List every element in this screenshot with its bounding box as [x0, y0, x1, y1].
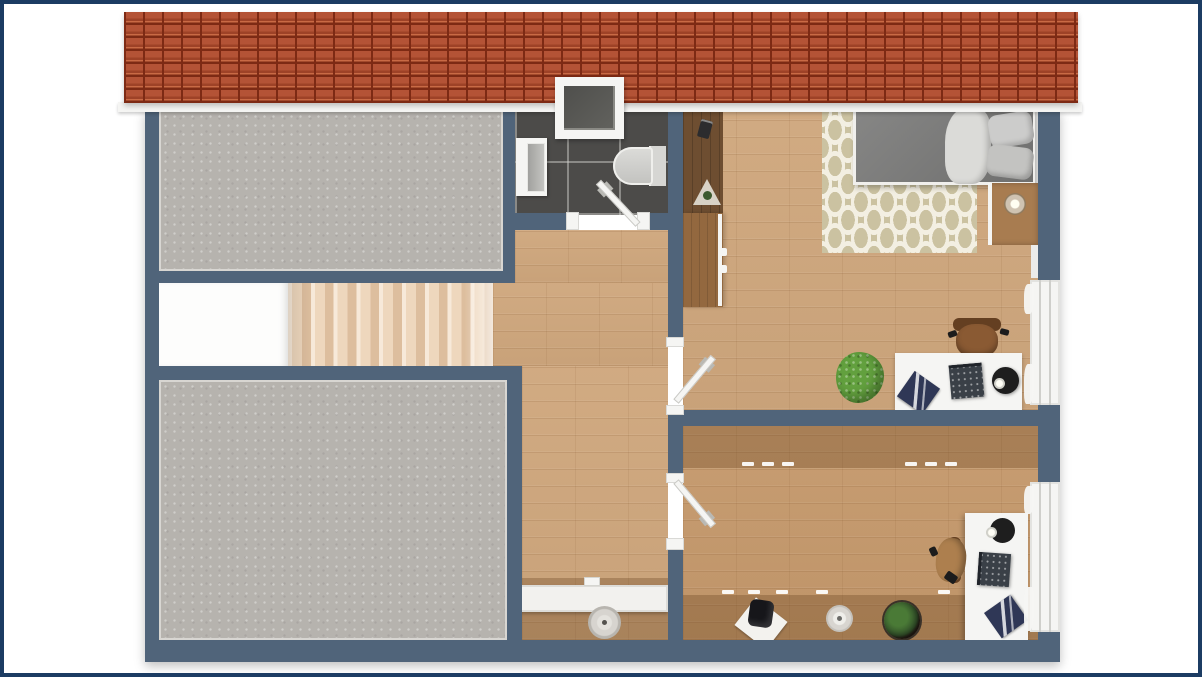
wall-right-mid: [1038, 405, 1060, 482]
door-post: [666, 337, 684, 347]
wall-storage-upper-bottom: [145, 271, 515, 283]
ceiling-dash: [776, 590, 788, 594]
nightstand-edge: [988, 183, 992, 245]
door-post: [566, 212, 579, 230]
wall-center-mid: [668, 415, 683, 473]
skylight-window: [555, 77, 624, 139]
ceiling-dash: [762, 462, 774, 466]
hallway-floor-mid: [493, 283, 668, 366]
table-lamp: [1004, 193, 1026, 215]
bed-pillow: [985, 143, 1035, 180]
desk-lamp-bulb: [986, 527, 997, 538]
wall-left: [145, 110, 159, 662]
curtain: [1024, 486, 1034, 514]
phone-on-wardrobe: [697, 119, 713, 139]
storage-room-upper-floor: [159, 110, 503, 271]
wall-center-upper: [668, 110, 683, 337]
ceiling-dash: [905, 462, 917, 466]
ceiling-dash: [938, 590, 950, 594]
office-sloped-band-top: [683, 426, 1038, 468]
vanity-sink: [516, 138, 547, 196]
wall-center-lower: [668, 550, 683, 640]
storage-room-lower-floor: [159, 380, 507, 640]
wardrobe: [683, 110, 723, 215]
ceiling-dash: [945, 462, 957, 466]
curtain: [1024, 364, 1034, 404]
wall-bathroom-bottom-left: [503, 213, 568, 230]
ceiling-dash: [816, 590, 828, 594]
wall-bathroom-left: [503, 110, 515, 283]
dresser-edge: [718, 214, 722, 306]
curtain: [1024, 587, 1034, 631]
bed-throw: [945, 108, 991, 184]
monitor: [977, 552, 1011, 587]
dresser-handle: [719, 265, 727, 273]
coffee-mug: [747, 598, 775, 628]
magazine: [897, 371, 940, 414]
hallway-floor-upper: [515, 230, 668, 283]
chair-armrest: [999, 328, 1009, 336]
sideboard-knob: [584, 577, 600, 586]
wall-right-lower: [1038, 632, 1060, 642]
ceiling-dash: [782, 462, 794, 466]
magazine: [984, 595, 1028, 639]
nightstand: [988, 183, 1038, 245]
double-bed: [853, 108, 1035, 185]
round-plate: [826, 605, 853, 632]
valet-tray: [693, 179, 721, 205]
wall-hallway-left: [507, 366, 522, 640]
ceiling-dash: [748, 590, 760, 594]
wall-bottom: [145, 640, 1060, 662]
bedroom-window: [1030, 280, 1060, 405]
office-desk: [965, 513, 1028, 642]
toilet-bowl: [613, 147, 653, 185]
toilet: [613, 146, 666, 186]
staircase-steps: [288, 283, 493, 366]
ceiling-dash: [742, 462, 754, 466]
pouf-button: [602, 620, 607, 625]
wall-stairwell-bottom: [145, 366, 522, 380]
stair-landing: [159, 283, 288, 366]
curtain: [1024, 284, 1034, 314]
desk-lamp-bulb: [994, 378, 1005, 389]
tray-plant-dot: [703, 191, 712, 200]
ceiling-dash: [722, 590, 734, 594]
laptop: [949, 363, 985, 400]
door-post: [666, 538, 684, 550]
door-post: [666, 405, 684, 415]
floor-plan-render: [0, 0, 1202, 677]
sideboard: [520, 585, 668, 612]
bed-pillow: [987, 110, 1036, 149]
office-plant: [884, 602, 920, 639]
office-window: [1030, 482, 1060, 632]
dresser: [683, 213, 723, 307]
pouf: [588, 606, 621, 639]
wall-right-upper: [1038, 110, 1060, 280]
wall-bedroom-office-divider: [683, 410, 1038, 426]
sink-basin: [527, 143, 545, 192]
bedroom-desk: [895, 353, 1022, 410]
dresser-handle: [719, 248, 727, 256]
office-chair: [928, 535, 970, 585]
ceiling-dash: [925, 462, 937, 466]
plate-center-dot: [837, 616, 842, 621]
skylight-glass: [564, 86, 615, 130]
